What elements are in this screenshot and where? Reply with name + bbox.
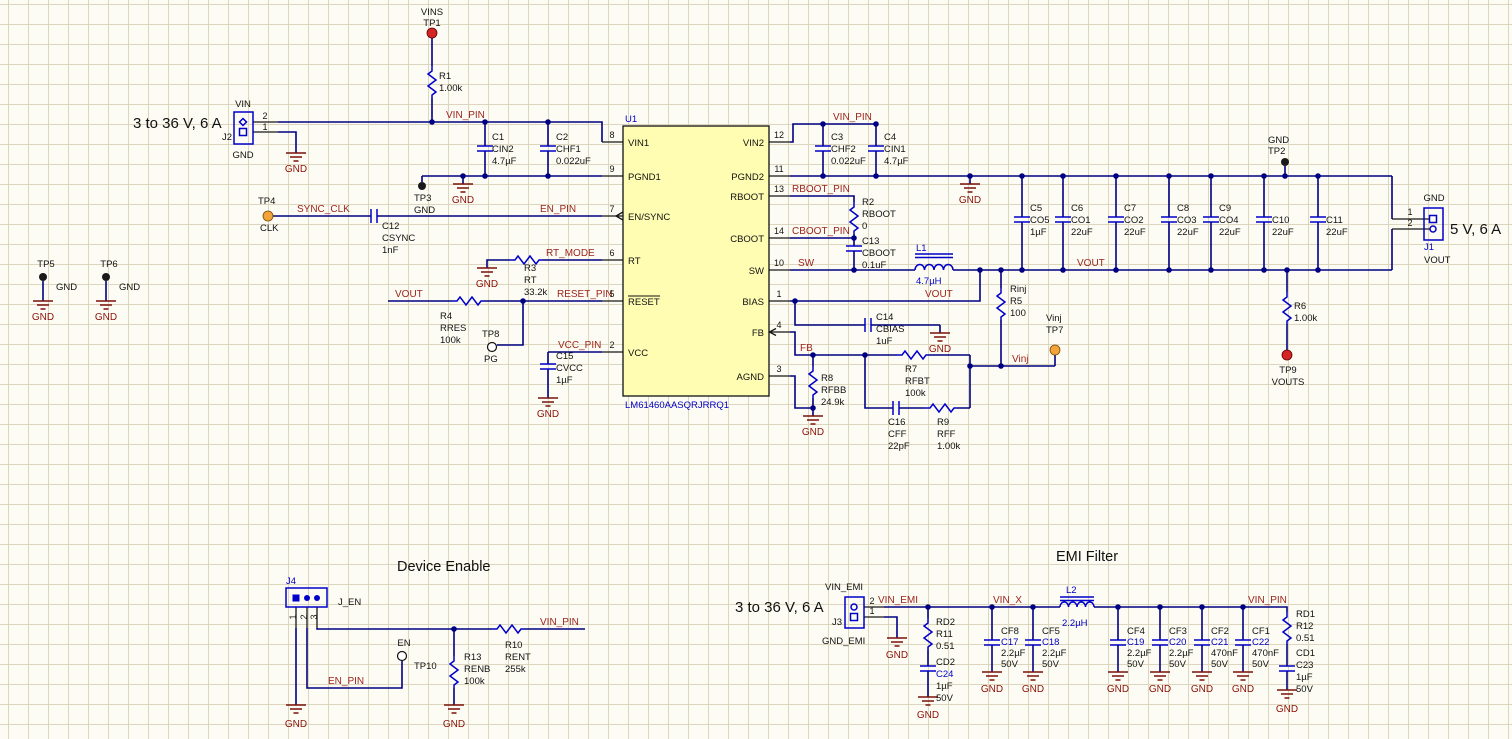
tp1-net: VINS — [421, 7, 443, 18]
u1-designator: U1 — [625, 114, 637, 125]
c23-voltage: 50V — [1296, 684, 1314, 695]
connector-j4[interactable]: J4 J_EN 1 2 3 — [286, 576, 361, 620]
c8-name: CO3 — [1177, 215, 1197, 226]
tp8-pad[interactable] — [488, 343, 497, 352]
tp1-pad[interactable] — [427, 28, 437, 38]
u1-pin-name: CBOOT — [730, 234, 764, 245]
c18-value: 2.2µF — [1042, 648, 1067, 659]
r7-value: 100k — [905, 388, 926, 399]
tp2-pad[interactable] — [1281, 158, 1289, 166]
r9-designator: R9 — [937, 417, 949, 428]
gnd-label: GND — [886, 650, 908, 661]
net-reset-pin[interactable]: RESET_PIN — [557, 289, 613, 300]
u1-pin-num: 11 — [774, 164, 783, 174]
emi-input-rating: 3 to 36 V, 6 A — [735, 599, 824, 616]
net-vout[interactable]: VOUT — [395, 289, 423, 300]
connector-j3[interactable]: VIN_EMI J3 2 1 GND_EMI — [822, 582, 875, 647]
tp6-designator: TP6 — [100, 259, 117, 270]
j4-pin1-num: 1 — [288, 614, 298, 619]
j3-port: VIN_EMI — [825, 582, 863, 593]
r12-designator: R12 — [1296, 621, 1313, 632]
c3-designator: C3 — [831, 132, 843, 143]
net-sw[interactable]: SW — [798, 258, 815, 269]
r13-name: RENB — [464, 664, 490, 675]
j1-port: VOUT — [1424, 255, 1451, 266]
r6-designator: R6 — [1294, 301, 1306, 312]
c11-value: 22uF — [1326, 227, 1348, 238]
u1-pin-num: 3 — [776, 364, 781, 374]
c18-alt: CF5 — [1042, 626, 1060, 637]
c15-value: 1µF — [556, 375, 573, 386]
connector-j2[interactable]: VIN J2 2 1 GND — [222, 99, 268, 161]
r13-value: 100k — [464, 676, 485, 687]
c20-designator: C20 — [1169, 637, 1186, 648]
c12-name: CSYNC — [382, 233, 415, 244]
c24-voltage: 50V — [936, 693, 954, 704]
c4-value: 4.7µF — [884, 156, 909, 167]
c9-value: 22uF — [1219, 227, 1241, 238]
c18-designator: C18 — [1042, 637, 1059, 648]
gnd-label: GND — [929, 344, 951, 355]
j3-designator: J3 — [832, 617, 842, 628]
tp10-designator: TP10 — [414, 661, 437, 672]
c6-value: 22uF — [1071, 227, 1093, 238]
r3-designator: R3 — [524, 263, 536, 274]
r2-designator: R2 — [862, 197, 874, 208]
c5-designator: C5 — [1030, 203, 1042, 214]
c13-designator: C13 — [862, 236, 879, 247]
c12-value: 1nF — [382, 245, 399, 256]
u1-pin-name: VIN1 — [628, 138, 649, 149]
c24-alt: CD2 — [936, 657, 955, 668]
net-vin-pin[interactable]: VIN_PIN — [540, 617, 579, 628]
u1-pin-num: 13 — [774, 184, 784, 194]
u1-pin-num: 6 — [609, 248, 614, 258]
c23-alt: CD1 — [1296, 648, 1315, 659]
u1-pin-num: 8 — [609, 130, 614, 140]
c20-voltage: 50V — [1169, 659, 1187, 670]
r2-name: RBOOT — [862, 209, 896, 220]
r11-designator: R11 — [936, 629, 953, 640]
c15-name: CVCC — [556, 363, 583, 374]
net-sync-clk[interactable]: SYNC_CLK — [297, 204, 350, 215]
c16-value: 22pF — [888, 441, 910, 452]
c8-value: 22uF — [1177, 227, 1199, 238]
r10-name: RENT — [505, 652, 531, 663]
net-fb[interactable]: FB — [800, 343, 813, 354]
r9-name: RFF — [937, 429, 956, 440]
j4-name: J_EN — [338, 597, 361, 608]
c22-value: 470nF — [1252, 648, 1279, 659]
gnd-label: GND — [537, 409, 559, 420]
u1-pin-num: 1 — [776, 289, 781, 299]
gnd-label: GND — [95, 312, 117, 323]
u1-pin-name: PGND1 — [628, 172, 661, 183]
r3-value: 33.2k — [524, 287, 547, 298]
u1-pin-name: EN/SYNC — [628, 212, 670, 223]
l2-designator: L2 — [1066, 585, 1077, 596]
gnd-label: GND — [1191, 684, 1213, 695]
j3-pin2-num: 2 — [869, 596, 874, 606]
tp3-pad[interactable] — [418, 182, 426, 190]
gnd-label: GND — [1232, 684, 1254, 695]
r11-value: 0.51 — [936, 641, 955, 652]
section-title-emi-filter: EMI Filter — [1056, 549, 1118, 565]
gnd-label: GND — [285, 164, 307, 175]
net-vcc-pin[interactable]: VCC_PIN — [558, 340, 601, 351]
gnd-label: GND — [802, 427, 824, 438]
u1-pin-name: RBOOT — [730, 192, 764, 203]
j2-pin2-num: 2 — [262, 111, 267, 121]
u1-pin-name: AGND — [737, 372, 765, 383]
gnd-label: GND — [452, 195, 474, 206]
net-rt-mode[interactable]: RT_MODE — [546, 248, 595, 259]
tp4-pad[interactable] — [263, 211, 273, 221]
c6-name: CO1 — [1071, 215, 1091, 226]
input-rating: 3 to 36 V, 6 A — [133, 115, 222, 132]
tp2-designator: TP2 — [1268, 146, 1285, 157]
net-vout[interactable]: VOUT — [925, 289, 953, 300]
gnd-label: GND — [981, 684, 1003, 695]
r5-designator: R5 — [1010, 296, 1022, 307]
c3-value: 0.022uF — [831, 156, 866, 167]
gnd-label: GND — [443, 719, 465, 730]
u1-pin-name: RT — [628, 256, 641, 267]
net-vin-pin[interactable]: VIN_PIN — [833, 112, 872, 123]
c23-value: 1µF — [1296, 672, 1313, 683]
c17-voltage: 50V — [1001, 659, 1019, 670]
tp1-designator: TP1 — [423, 18, 440, 29]
c14-designator: C14 — [876, 312, 893, 323]
c19-value: 2.2µF — [1127, 648, 1152, 659]
c15-designator: C15 — [556, 351, 573, 362]
c7-designator: C7 — [1124, 203, 1136, 214]
output-rating: 5 V, 6 A — [1450, 221, 1501, 238]
c5-value: 1µF — [1030, 227, 1047, 238]
j4-pin2-num: 2 — [299, 614, 309, 619]
j2-port: VIN — [235, 99, 251, 110]
tp6-pad[interactable] — [102, 273, 110, 281]
r6-value: 1.00k — [1294, 313, 1317, 324]
r4-name: RRES — [440, 323, 466, 334]
u1-pin-name: BIAS — [742, 297, 764, 308]
tp9-net: VOUTS — [1272, 377, 1305, 388]
c19-voltage: 50V — [1127, 659, 1145, 670]
c2-name: CHF1 — [556, 144, 581, 155]
c19-designator: C19 — [1127, 637, 1144, 648]
u1-pin-num: 7 — [609, 204, 614, 214]
u1-pin-num: 9 — [609, 164, 614, 174]
j1-pin2-num: 2 — [1407, 218, 1412, 228]
section-title-device-enable: Device Enable — [397, 559, 491, 575]
c22-voltage: 50V — [1252, 659, 1270, 670]
c21-designator: C21 — [1211, 637, 1228, 648]
gnd-label: GND — [476, 279, 498, 290]
tp5-pad[interactable] — [39, 273, 47, 281]
tp3-net: GND — [414, 205, 435, 216]
c4-name: CIN1 — [884, 144, 906, 155]
u1-pin-num: 4 — [776, 320, 781, 330]
net-vin-x[interactable]: VIN_X — [993, 595, 1022, 606]
component-l2[interactable]: L2 2.2µH — [1060, 585, 1094, 629]
r7-name: RFBT — [905, 376, 930, 387]
u1-pin-num: 5 — [609, 289, 614, 299]
j1-gnd: GND — [1423, 193, 1444, 204]
gnd-label: GND — [1107, 684, 1129, 695]
c13-value: 0.1uF — [862, 260, 886, 271]
c4-designator: C4 — [884, 132, 896, 143]
u1-pin-name: VCC — [628, 348, 648, 359]
u1-pin-name: VIN2 — [743, 138, 764, 149]
c12-designator: C12 — [382, 221, 399, 232]
r8-name: RFBB — [821, 385, 846, 396]
tp7-pad[interactable] — [1050, 345, 1060, 355]
u1-pin-num: 2 — [609, 340, 614, 350]
r10-designator: R10 — [505, 640, 522, 651]
c3-name: CHF2 — [831, 144, 856, 155]
c1-name: CIN2 — [492, 144, 514, 155]
u1-pin-num: 10 — [774, 258, 784, 268]
tp8-net: PG — [484, 354, 498, 365]
r11-alt: RD2 — [936, 617, 955, 628]
c24-value: 1µF — [936, 681, 953, 692]
c20-value: 2.2µF — [1169, 648, 1194, 659]
c9-name: CO4 — [1219, 215, 1239, 226]
net-rboot-pin[interactable]: RBOOT_PIN — [792, 184, 850, 195]
tp9-designator: TP9 — [1279, 365, 1296, 376]
tp8-designator: TP8 — [482, 329, 499, 340]
r3-name: RT — [524, 275, 537, 286]
c17-designator: C17 — [1001, 637, 1018, 648]
component-l1[interactable]: L1 4.7µH — [915, 243, 953, 287]
j2-gnd: GND — [232, 150, 253, 161]
c1-designator: C1 — [492, 132, 504, 143]
c16-name: CFF — [888, 429, 907, 440]
u1-pin-name: PGND2 — [731, 172, 764, 183]
l1-designator: L1 — [916, 243, 927, 254]
c6-designator: C6 — [1071, 203, 1083, 214]
tp2-net: GND — [1268, 135, 1289, 146]
tp7-net: Vinj — [1046, 313, 1062, 324]
tp5-net: GND — [56, 282, 77, 293]
l1-value: 4.7µH — [916, 276, 942, 287]
c16-designator: C16 — [888, 417, 905, 428]
net-cboot-pin[interactable]: CBOOT_PIN — [792, 226, 850, 237]
gnd-label: GND — [1276, 704, 1298, 715]
c1-value: 4.7µF — [492, 156, 517, 167]
schematic-canvas: GND GND GND GND GND GND GND GND GND GND … — [0, 0, 1512, 739]
tp10-net: EN — [397, 638, 410, 649]
r10-value: 255k — [505, 664, 526, 675]
net-vin-pin[interactable]: VIN_PIN — [446, 110, 485, 121]
r8-designator: R8 — [821, 373, 833, 384]
u1-pin-num: 14 — [774, 226, 784, 236]
c14-value: 1uF — [876, 336, 893, 347]
j2-designator: J2 — [222, 132, 232, 143]
r13-designator: R13 — [464, 652, 481, 663]
c17-alt: CF8 — [1001, 626, 1019, 637]
tp5-designator: TP5 — [37, 259, 54, 270]
r12-alt: RD1 — [1296, 609, 1315, 620]
r1-designator: R1 — [439, 71, 451, 82]
tp7-designator: TP7 — [1046, 325, 1063, 336]
gnd-label: GND — [32, 312, 54, 323]
r5-name: Rinj — [1010, 284, 1026, 295]
c5-name: CO5 — [1030, 215, 1050, 226]
j4-designator: J4 — [286, 576, 296, 587]
tp4-designator: TP4 — [258, 196, 275, 207]
c22-alt: CF1 — [1252, 626, 1270, 637]
c23-designator: C23 — [1296, 660, 1313, 671]
j1-designator: J1 — [1424, 242, 1434, 253]
j4-pin3-num: 3 — [309, 614, 319, 619]
gnd-label: GND — [1022, 684, 1044, 695]
r2-value: 0 — [862, 221, 867, 232]
c20-alt: CF3 — [1169, 626, 1187, 637]
r4-designator: R4 — [440, 311, 452, 322]
r4-value: 100k — [440, 335, 461, 346]
j2-pin1-num: 1 — [262, 122, 267, 132]
c9-designator: C9 — [1219, 203, 1231, 214]
net-vout[interactable]: VOUT — [1077, 258, 1105, 269]
u1-pin-name: FB — [752, 328, 764, 339]
c21-alt: CF2 — [1211, 626, 1229, 637]
r5-value: 100 — [1010, 308, 1026, 319]
gnd-label: GND — [917, 710, 939, 721]
c21-value: 470nF — [1211, 648, 1238, 659]
l2-value: 2.2µH — [1062, 618, 1088, 629]
schematic-sheet: GND GND GND GND GND GND GND GND GND GND … — [0, 0, 1512, 739]
tp3-designator: TP3 — [414, 193, 431, 204]
tp6-net: GND — [119, 282, 140, 293]
tp9-pad[interactable] — [1282, 350, 1292, 360]
c10-designator: C10 — [1272, 215, 1289, 226]
tp10-pad[interactable] — [398, 652, 407, 661]
r12-value: 0.51 — [1296, 633, 1315, 644]
c18-voltage: 50V — [1042, 659, 1060, 670]
c17-value: 2.2µF — [1001, 648, 1026, 659]
c11-designator: C11 — [1326, 215, 1343, 226]
u1-pin-name: SW — [749, 266, 764, 277]
net-vinj[interactable]: Vinj — [1012, 354, 1029, 365]
component-u1[interactable]: U1 LM61460AASQRJRRQ1 8 9 7 6 5 2 VIN1 PG… — [609, 114, 784, 411]
c10-value: 22uF — [1272, 227, 1294, 238]
c14-name: CBIAS — [876, 324, 905, 335]
tp4-net: CLK — [260, 223, 279, 234]
c8-designator: C8 — [1177, 203, 1189, 214]
r7-designator: R7 — [905, 364, 917, 375]
c21-voltage: 50V — [1211, 659, 1229, 670]
u1-pin-name: RESET — [628, 297, 660, 308]
net-vin-pin[interactable]: VIN_PIN — [1248, 595, 1287, 606]
c2-value: 0.022uF — [556, 156, 591, 167]
u1-part-number: LM61460AASQRJRRQ1 — [625, 400, 729, 411]
gnd-label: GND — [959, 195, 981, 206]
net-en-pin[interactable]: EN_PIN — [540, 204, 576, 215]
r1-value: 1.00k — [439, 83, 462, 94]
gnd-label: GND — [1149, 684, 1171, 695]
r8-value: 24.9k — [821, 397, 844, 408]
c7-name: CO2 — [1124, 215, 1144, 226]
u1-pin-num: 12 — [774, 130, 784, 140]
j1-pin1-num: 1 — [1407, 207, 1412, 217]
r9-value: 1.00k — [937, 441, 960, 452]
c7-value: 22uF — [1124, 227, 1146, 238]
net-vin-emi[interactable]: VIN_EMI — [878, 595, 918, 606]
j3-gnd-port: GND_EMI — [822, 636, 865, 647]
c22-designator: C22 — [1252, 637, 1269, 648]
c19-alt: CF4 — [1127, 626, 1145, 637]
c24-designator: C24 — [936, 669, 953, 680]
j3-pin1-num: 1 — [869, 606, 874, 616]
c13-name: CBOOT — [862, 248, 896, 259]
gnd-label: GND — [285, 719, 307, 730]
c2-designator: C2 — [556, 132, 568, 143]
net-en-pin[interactable]: EN_PIN — [328, 676, 364, 687]
